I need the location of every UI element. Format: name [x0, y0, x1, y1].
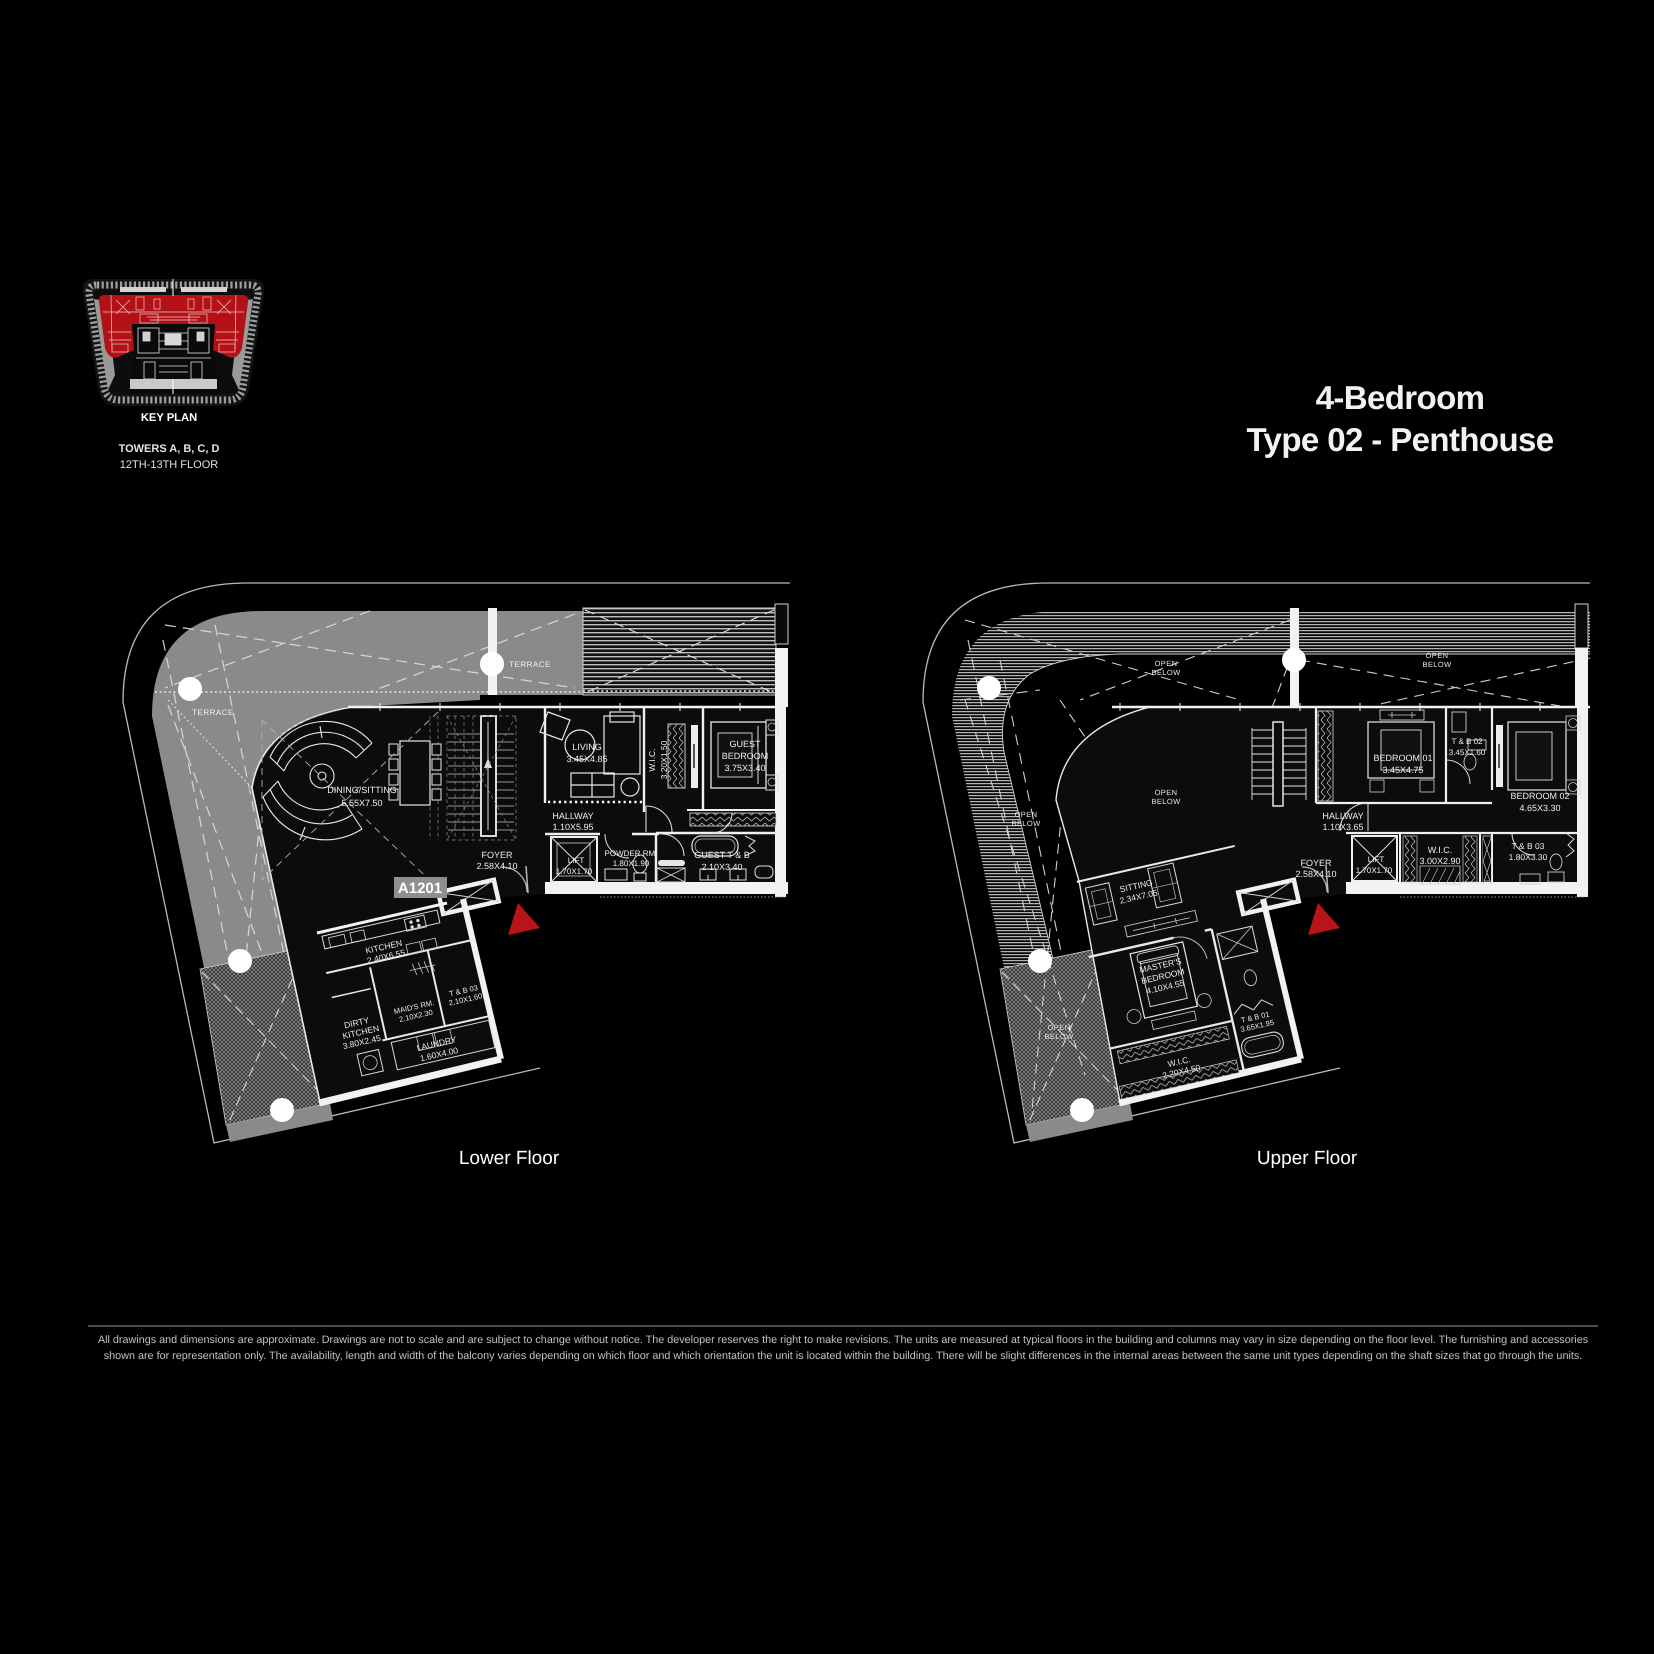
svg-text:T & B 03: T & B 03 [1512, 841, 1545, 851]
svg-text:HALLWAY: HALLWAY [552, 811, 593, 821]
svg-text:POWDER RM.: POWDER RM. [605, 849, 658, 858]
svg-text:3.45X1.60: 3.45X1.60 [1449, 748, 1486, 757]
svg-text:TOWERS A, B, C, D: TOWERS A, B, C, D [119, 443, 220, 455]
svg-text:1.10X3.65: 1.10X3.65 [1322, 822, 1363, 832]
svg-text:LIFT: LIFT [568, 856, 585, 865]
svg-text:TERRACE: TERRACE [509, 660, 551, 669]
svg-text:Lower Floor: Lower Floor [459, 1148, 560, 1169]
svg-text:OPEN: OPEN [1155, 659, 1178, 668]
svg-text:1.70X1.70: 1.70X1.70 [556, 867, 593, 876]
svg-text:GUEST: GUEST [729, 739, 761, 749]
svg-text:shown are for representation o: shown are for representation only. The a… [104, 1350, 1583, 1362]
svg-text:OPEN: OPEN [1015, 810, 1038, 819]
svg-text:BEDROOM: BEDROOM [722, 751, 769, 761]
svg-text:FOYER: FOYER [1300, 858, 1332, 868]
svg-text:BEDROOM 01: BEDROOM 01 [1373, 753, 1432, 763]
svg-text:2.58X4.10: 2.58X4.10 [1295, 869, 1336, 879]
svg-text:3.00X2.90: 3.00X2.90 [1419, 856, 1460, 866]
svg-text:BELOW: BELOW [1011, 819, 1041, 828]
svg-text:4.65X3.30: 4.65X3.30 [1519, 803, 1560, 813]
svg-text:3.20X1.50: 3.20X1.50 [659, 740, 669, 779]
svg-text:All drawings and dimensions ar: All drawings and dimensions are approxim… [98, 1334, 1589, 1346]
svg-text:LIFT: LIFT [1368, 855, 1385, 864]
svg-text:BEDROOM 02: BEDROOM 02 [1510, 791, 1569, 801]
svg-text:Upper Floor: Upper Floor [1257, 1148, 1358, 1169]
svg-text:4-Bedroom: 4-Bedroom [1316, 379, 1485, 416]
svg-text:HALLWAY: HALLWAY [1322, 811, 1363, 821]
svg-text:BELOW: BELOW [1151, 797, 1181, 806]
svg-text:W.I.C.: W.I.C. [647, 748, 657, 771]
svg-text:KEY PLAN: KEY PLAN [141, 412, 197, 424]
svg-text:3.75X3.40: 3.75X3.40 [724, 763, 765, 773]
svg-text:FOYER: FOYER [481, 850, 513, 860]
svg-text:LIVING: LIVING [572, 742, 602, 752]
svg-text:Type 02 - Penthouse: Type 02 - Penthouse [1246, 421, 1553, 458]
svg-text:TERRACE: TERRACE [192, 708, 234, 717]
svg-text:3.45X4.75: 3.45X4.75 [1382, 765, 1423, 775]
svg-text:W.I.C.: W.I.C. [1428, 845, 1453, 855]
svg-text:BELOW: BELOW [1422, 660, 1452, 669]
svg-text:5.55X7.50: 5.55X7.50 [341, 798, 382, 808]
svg-text:GUEST T & B: GUEST T & B [694, 850, 750, 860]
svg-text:BELOW: BELOW [1151, 668, 1181, 677]
svg-text:1.80X1.90: 1.80X1.90 [613, 859, 650, 868]
svg-text:BELOW: BELOW [1044, 1032, 1074, 1041]
svg-text:3.45X4.85: 3.45X4.85 [566, 754, 607, 764]
svg-text:2.58X4.10: 2.58X4.10 [476, 861, 517, 871]
svg-text:A1201: A1201 [398, 880, 442, 897]
svg-text:1.10X5.95: 1.10X5.95 [552, 822, 593, 832]
svg-text:T & B 02: T & B 02 [1452, 737, 1484, 746]
svg-text:DINING/SITTING: DINING/SITTING [327, 785, 397, 795]
svg-text:OPEN: OPEN [1048, 1023, 1071, 1032]
svg-text:12TH-13TH FLOOR: 12TH-13TH FLOOR [120, 459, 218, 471]
svg-text:OPEN: OPEN [1155, 788, 1178, 797]
svg-text:OPEN: OPEN [1426, 651, 1449, 660]
svg-text:1.70X1.70: 1.70X1.70 [1356, 866, 1393, 875]
svg-text:1.80X3.30: 1.80X3.30 [1509, 852, 1548, 862]
svg-text:2.10X3.40: 2.10X3.40 [701, 862, 742, 872]
